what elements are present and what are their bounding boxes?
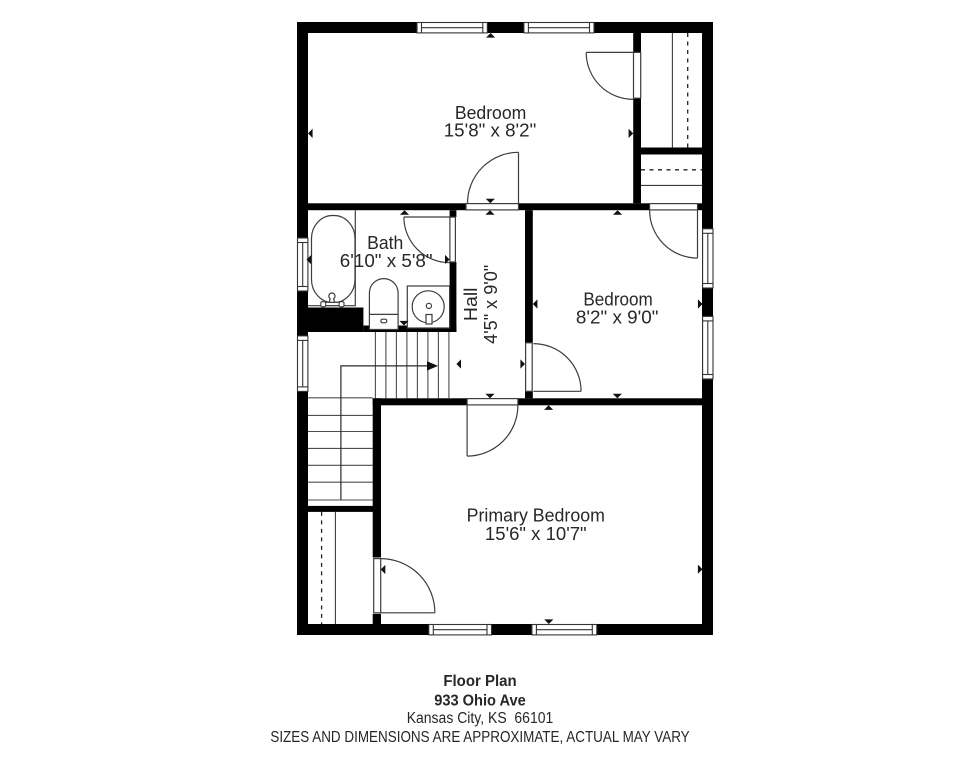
svg-text:6'10" x 5'8": 6'10" x 5'8": [340, 251, 433, 271]
svg-text:SIZES AND DIMENSIONS ARE APPRO: SIZES AND DIMENSIONS ARE APPROXIMATE, AC…: [270, 729, 689, 746]
svg-text:Kansas City, KS 66101: Kansas City, KS 66101: [407, 710, 554, 727]
svg-text:933 Ohio Ave: 933 Ohio Ave: [434, 692, 526, 709]
svg-text:Bath: Bath: [367, 233, 403, 253]
svg-text:8'2" x 9'0": 8'2" x 9'0": [576, 308, 659, 328]
svg-text:Primary Bedroom: Primary Bedroom: [467, 505, 605, 525]
svg-text:Bedroom: Bedroom: [583, 290, 652, 310]
svg-text:15'6" x 10'7": 15'6" x 10'7": [485, 524, 587, 544]
svg-text:4'5" x 9'0": 4'5" x 9'0": [481, 265, 501, 344]
svg-text:Hall: Hall: [461, 287, 481, 321]
svg-text:Floor Plan: Floor Plan: [443, 673, 516, 690]
svg-text:15'8" x 8'2": 15'8" x 8'2": [444, 120, 537, 140]
